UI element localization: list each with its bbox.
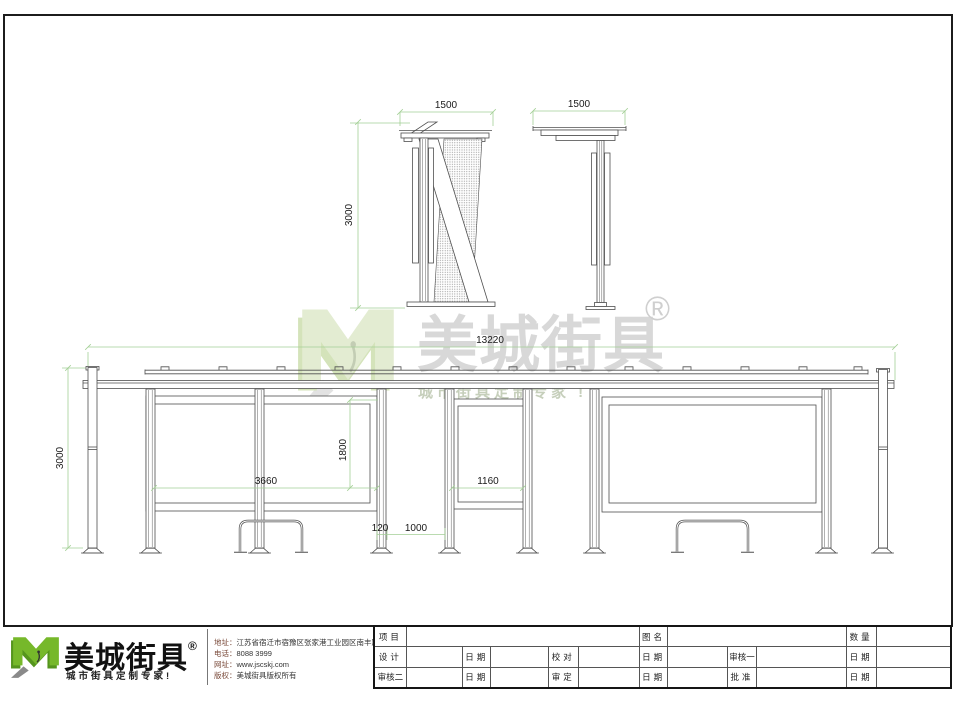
website-label: 网址： [214,660,237,669]
copyright-label: 版权： [214,671,237,680]
dim-post-width: 120 [372,523,389,534]
bench [234,521,308,552]
dim-total-width: 13220 [476,335,504,346]
cell-review2-label: 审核二 [375,668,407,687]
cell-approve-final-label: 审定 [549,668,579,687]
cell-project-label: 项目 [375,627,407,646]
contact-address: 地址：江苏省宿迁市宿豫区张家港工业园区南丰路西侧1号 [214,637,372,648]
cell-drawing-name-label: 图名 [640,627,668,646]
title-block-row2: 设计 日期 校对 日期 审核一 日期 [375,647,950,667]
cell-design-label: 设计 [375,647,407,666]
dim-side-b-width: 1500 [568,99,591,110]
title-block-table: 项目 图名 数量 设计 日期 校对 日期 审核一 日期 审核二 日期 审定 [373,625,952,689]
cell-approve-final-value[interactable] [579,668,641,687]
contact-copyright: 版权：美城街具版权所有 [214,670,372,681]
cell-approve-label: 批准 [728,668,758,687]
website-value: www.jscskj.com [237,660,290,669]
company-logo-icon [10,632,62,681]
title-block-row1: 项目 图名 数量 [375,627,950,647]
cell-quantity-value[interactable] [877,627,950,646]
dim-side-a-width: 1500 [435,100,458,111]
cell-review1-label: 审核一 [728,647,758,666]
cell-date-value[interactable] [491,668,549,687]
dim-panel-height: 1800 [338,438,349,461]
cell-project-value[interactable] [407,627,640,646]
cell-design-value[interactable] [407,647,464,666]
cell-approve-value[interactable] [757,668,846,687]
contact-info: 地址：江苏省宿迁市宿豫区张家港工业园区南丰路西侧1号 电话：8088 3999 … [214,637,372,681]
dim-post-gap: 1000 [405,523,428,534]
phone-value: 8088 3999 [237,649,272,658]
cell-date-label: 日期 [640,668,668,687]
contact-phone: 电话：8088 3999 [214,648,372,659]
cell-review1-value[interactable] [757,647,846,666]
cell-date-label: 日期 [847,647,877,666]
phone-label: 电话： [214,649,237,658]
drawing-sheet: 美城街具 ® 城市街具定制专家 ! [0,0,960,704]
cell-date-value[interactable] [668,647,728,666]
watermark-registered-mark: ® [645,290,670,328]
cell-quantity-label: 数量 [847,627,877,646]
contact-website: 网址：www.jscskj.com [214,659,372,670]
footer-divider [207,629,208,685]
side-view-x-column [350,109,496,311]
dim-total-height: 3000 [55,446,66,469]
cell-check-value[interactable] [579,647,641,666]
cell-date-value[interactable] [491,647,549,666]
cell-date-label: 日期 [847,668,877,687]
cell-date-label: 日期 [463,647,491,666]
dim-mid-panel-width: 1160 [477,476,499,487]
cell-date-value[interactable] [668,668,728,687]
cell-check-label: 校对 [549,647,579,666]
cell-review2-value[interactable] [407,668,464,687]
watermark-brand-text: 美城街具 [417,311,665,379]
bench [671,521,754,552]
registered-mark: ® [188,639,198,653]
company-tagline: 城市街具定制专家! [66,668,172,682]
address-label: 地址： [214,638,237,647]
cell-date-value[interactable] [877,647,950,666]
drawing-canvas: 美城街具 ® 城市街具定制专家 ! [0,0,960,704]
dim-panel-width: 3660 [255,476,278,487]
cell-drawing-name-value[interactable] [668,627,847,646]
side-view-plain-column [530,108,628,309]
copyright-value: 美城街具版权所有 [237,671,297,680]
dim-side-a-height: 3000 [344,203,355,226]
cell-date-value[interactable] [877,668,950,687]
title-block-row3: 审核二 日期 审定 日期 批准 日期 [375,668,950,687]
cell-date-label: 日期 [640,647,668,666]
cell-date-label: 日期 [463,668,491,687]
